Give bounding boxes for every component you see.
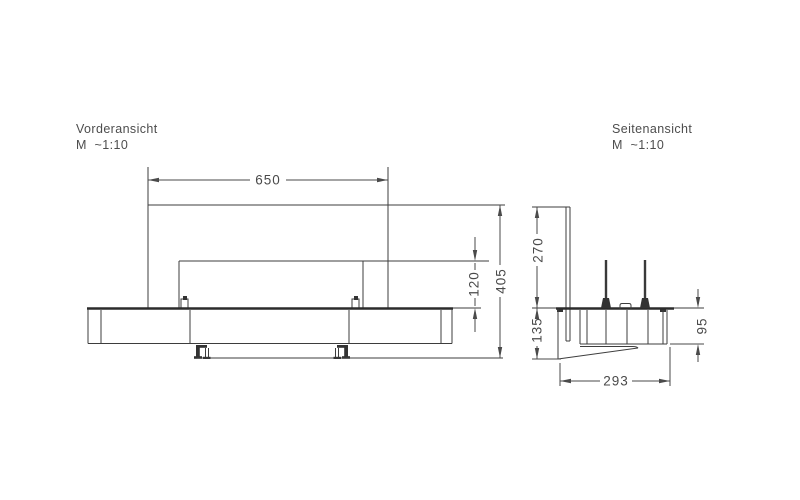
front-foot-right bbox=[334, 345, 351, 359]
arrowhead bbox=[498, 205, 502, 216]
arrowhead bbox=[535, 297, 539, 308]
dimension-120: 120 bbox=[467, 237, 482, 332]
dimension-270: 270 bbox=[531, 207, 546, 308]
front-foot-left bbox=[194, 345, 211, 359]
arrowhead bbox=[696, 297, 700, 308]
arrowhead bbox=[377, 178, 388, 182]
front-burner-box bbox=[179, 261, 489, 308]
drawing-sheet: Vorderansicht M ~1:10 Seitenansicht M ~1… bbox=[0, 0, 800, 500]
dim-95-label: 95 bbox=[695, 317, 710, 334]
dim-135-label: 135 bbox=[530, 317, 545, 343]
side-burner-rod-right bbox=[640, 260, 650, 308]
side-base-body bbox=[558, 309, 667, 359]
dim-650-label: 650 bbox=[255, 173, 281, 188]
drawing-canvas: 650 120 405 bbox=[0, 0, 800, 500]
arrowhead bbox=[659, 379, 670, 383]
front-base-body bbox=[87, 308, 481, 344]
arrowhead bbox=[560, 379, 571, 383]
front-glass-clip-left bbox=[181, 296, 188, 308]
arrowhead bbox=[473, 250, 477, 261]
dim-270-label: 270 bbox=[531, 237, 546, 263]
arrowhead bbox=[535, 348, 539, 359]
dim-405-label: 405 bbox=[494, 268, 509, 294]
dimension-95: 95 bbox=[670, 289, 710, 362]
side-view-drawing: 270 135 95 bbox=[530, 207, 710, 389]
arrowhead bbox=[148, 178, 159, 182]
front-back-panel bbox=[148, 167, 505, 308]
dim-293-label: 293 bbox=[603, 374, 629, 389]
front-glass-clip-right bbox=[352, 296, 359, 308]
side-burner-rod-left bbox=[601, 260, 611, 308]
arrowhead bbox=[535, 207, 539, 218]
front-view-drawing: 650 120 405 bbox=[87, 167, 509, 359]
dimension-650: 650 bbox=[148, 173, 388, 188]
arrowhead bbox=[498, 347, 502, 358]
dim-120-label: 120 bbox=[467, 271, 482, 297]
dimension-405: 405 bbox=[494, 205, 509, 358]
dimension-293: 293 bbox=[560, 347, 670, 389]
dimension-135: 135 bbox=[530, 308, 562, 359]
